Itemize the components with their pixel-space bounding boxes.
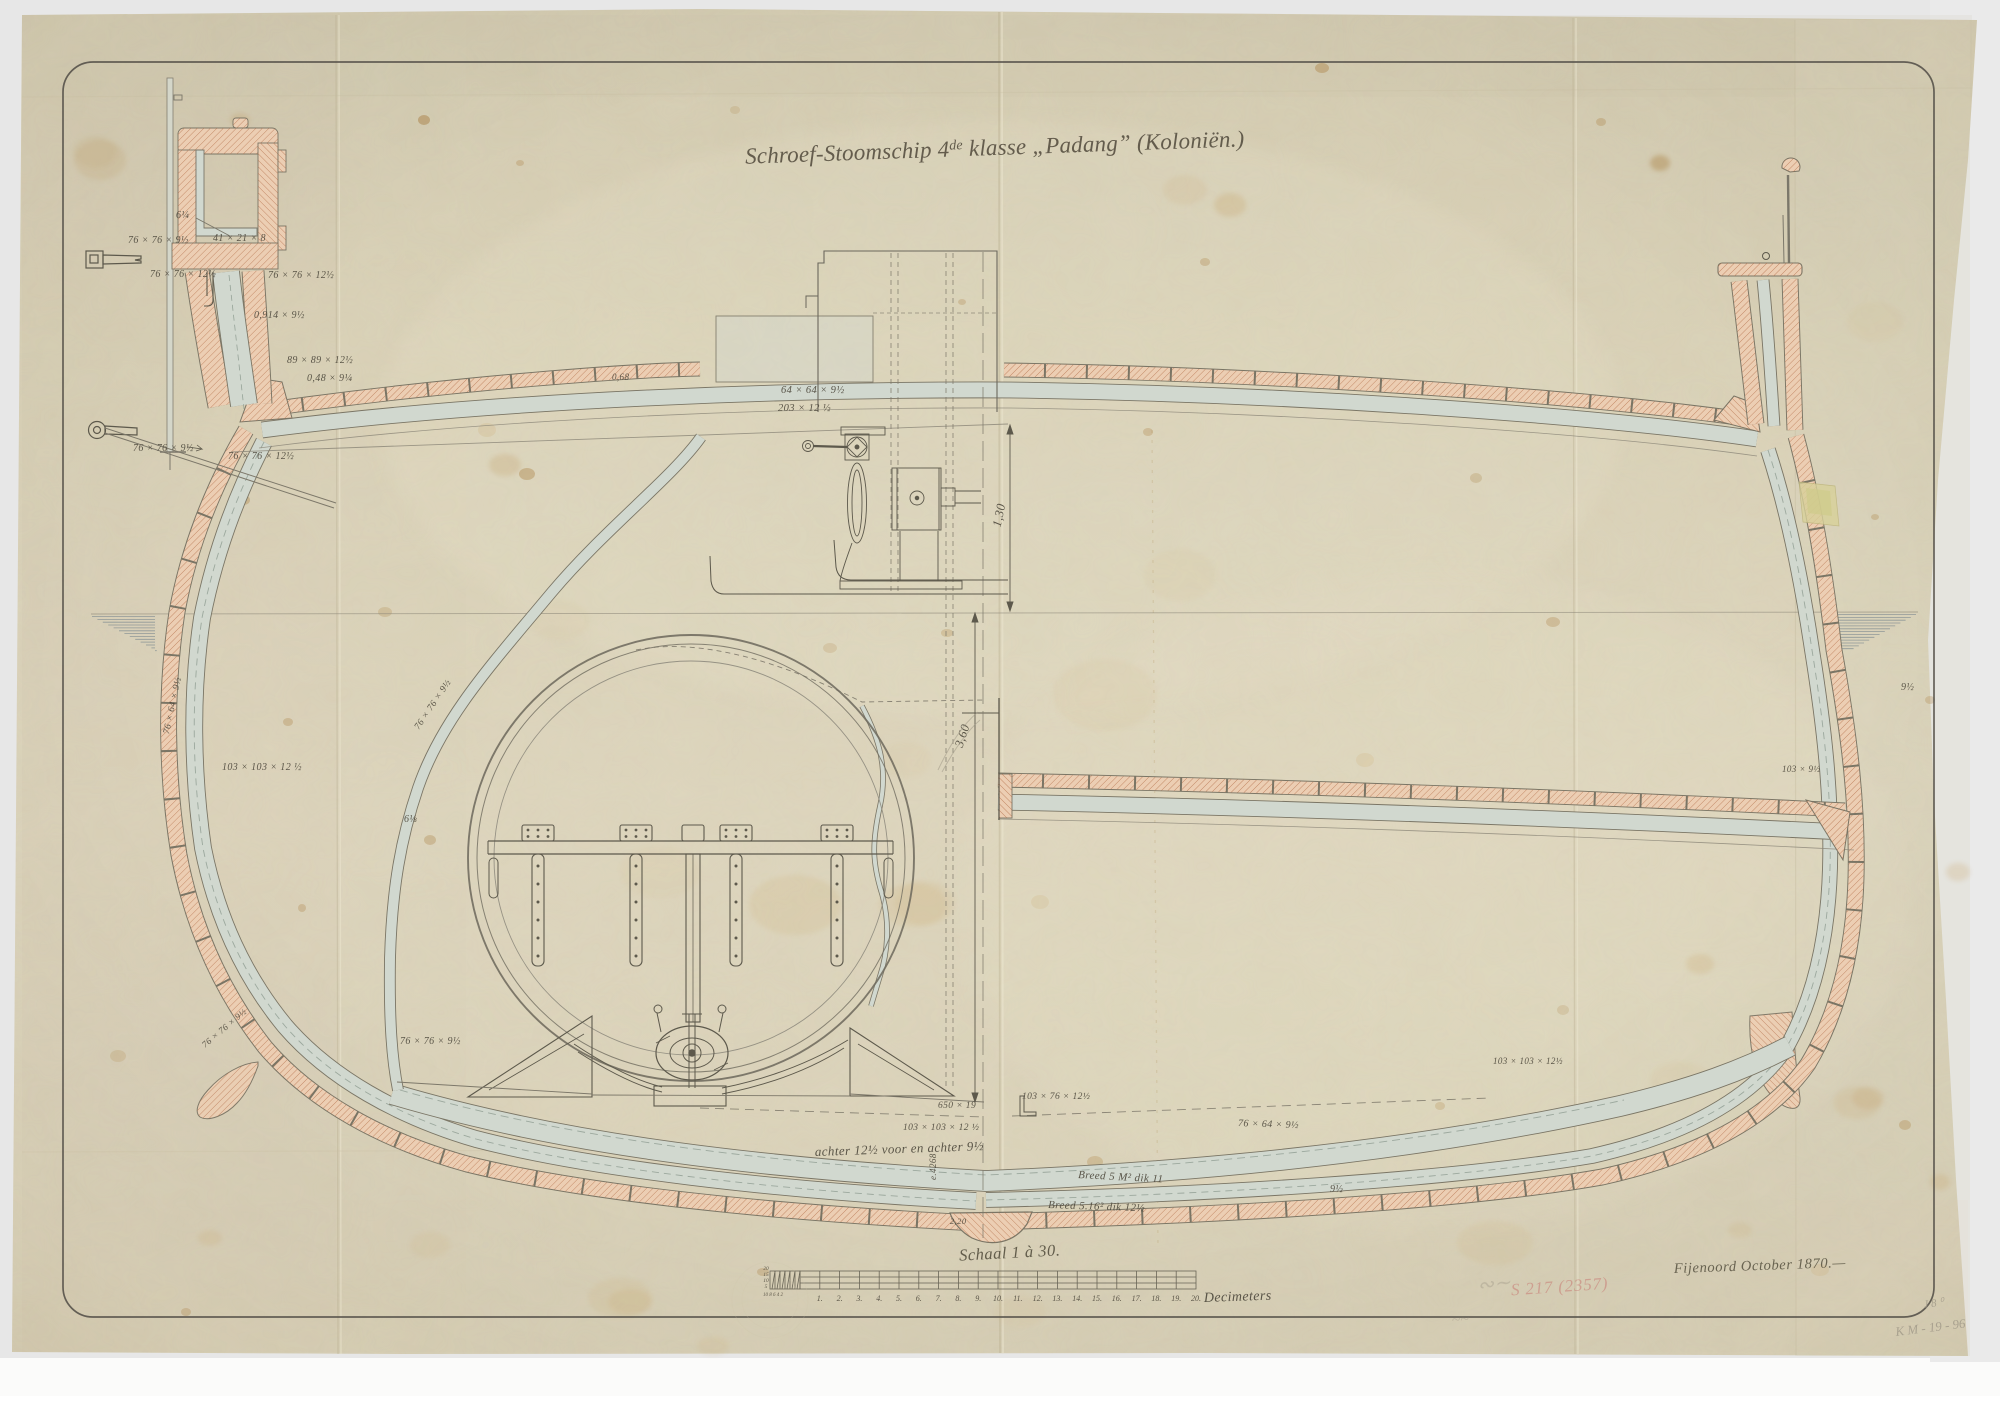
svg-text:4.: 4.: [876, 1294, 882, 1303]
svg-text:76 × 76 × 12½: 76 × 76 × 12½: [228, 451, 294, 462]
svg-text:~~: ~~: [1451, 1311, 1470, 1329]
svg-text:7.: 7.: [936, 1294, 942, 1303]
svg-text:0,68: 0,68: [612, 372, 629, 382]
svg-text:0,48 × 9¼: 0,48 × 9¼: [307, 373, 352, 384]
svg-text:0,914 × 9½: 0,914 × 9½: [254, 310, 305, 321]
svg-text:20.: 20.: [1191, 1294, 1201, 1303]
svg-text:9½: 9½: [1901, 682, 1914, 693]
svg-text:18.: 18.: [1151, 1294, 1161, 1303]
svg-text:Decimeters: Decimeters: [1203, 1289, 1272, 1306]
svg-text:103 × 103 × 12 ½: 103 × 103 × 12 ½: [903, 1122, 979, 1133]
svg-text:76 × 64 × 9½: 76 × 64 × 9½: [1238, 1118, 1299, 1131]
svg-text:76 × 76 × 9½: 76 × 76 × 9½: [133, 443, 194, 454]
svg-text:41 × 21 × 8: 41 × 21 × 8: [213, 233, 266, 244]
svg-text:e.4268: e.4268: [928, 1153, 938, 1180]
svg-text:9.: 9.: [975, 1294, 981, 1303]
svg-text:10 8 6 4 2: 10 8 6 4 2: [763, 1293, 784, 1298]
svg-text:10.: 10.: [993, 1294, 1003, 1303]
svg-text:103 × 103 × 12 ½: 103 × 103 × 12 ½: [222, 762, 302, 773]
svg-text:76 × 76 × 9½: 76 × 76 × 9½: [128, 235, 189, 246]
svg-text:15.: 15.: [1092, 1294, 1102, 1303]
svg-text:2.: 2.: [837, 1294, 843, 1303]
svg-text:5.: 5.: [896, 1294, 902, 1303]
svg-text:6⅛: 6⅛: [404, 814, 417, 825]
svg-text:1.: 1.: [817, 1294, 823, 1303]
svg-text:64 × 64 × 9½: 64 × 64 × 9½: [781, 385, 845, 396]
svg-text:76 × 76 × 12½: 76 × 76 × 12½: [268, 270, 334, 281]
svg-text:6.: 6.: [916, 1294, 922, 1303]
svg-text:103 × 103 × 12½: 103 × 103 × 12½: [1493, 1056, 1563, 1066]
svg-text:17.: 17.: [1132, 1294, 1142, 1303]
svg-text:9½: 9½: [1330, 1184, 1343, 1195]
svg-text:12.: 12.: [1033, 1294, 1043, 1303]
svg-text:8.: 8.: [955, 1294, 961, 1303]
svg-text:650 × 19: 650 × 19: [938, 1101, 976, 1111]
svg-text:∾∼: ∾∼: [1476, 1272, 1512, 1297]
svg-text:203 × 12 ½: 203 × 12 ½: [778, 403, 831, 414]
svg-text:76 × 76 × 9½: 76 × 76 × 9½: [400, 1036, 461, 1047]
svg-text:89 × 89 × 12½: 89 × 89 × 12½: [287, 355, 353, 366]
svg-text:11.: 11.: [1013, 1294, 1022, 1303]
svg-text:13.: 13.: [1052, 1294, 1062, 1303]
svg-text:5: 5: [765, 1284, 768, 1290]
svg-text:6¼: 6¼: [176, 210, 189, 221]
svg-text:76 × 76 × 12½: 76 × 76 × 12½: [150, 269, 216, 280]
svg-text:16.: 16.: [1112, 1294, 1122, 1303]
svg-text:2,20: 2,20: [950, 1216, 967, 1226]
svg-text:19.: 19.: [1171, 1294, 1181, 1303]
svg-text:103 × 76 × 12½: 103 × 76 × 12½: [1022, 1091, 1090, 1102]
svg-text:3.: 3.: [855, 1294, 862, 1303]
svg-text:103 × 9½: 103 × 9½: [1782, 764, 1821, 774]
svg-text:14.: 14.: [1072, 1294, 1082, 1303]
